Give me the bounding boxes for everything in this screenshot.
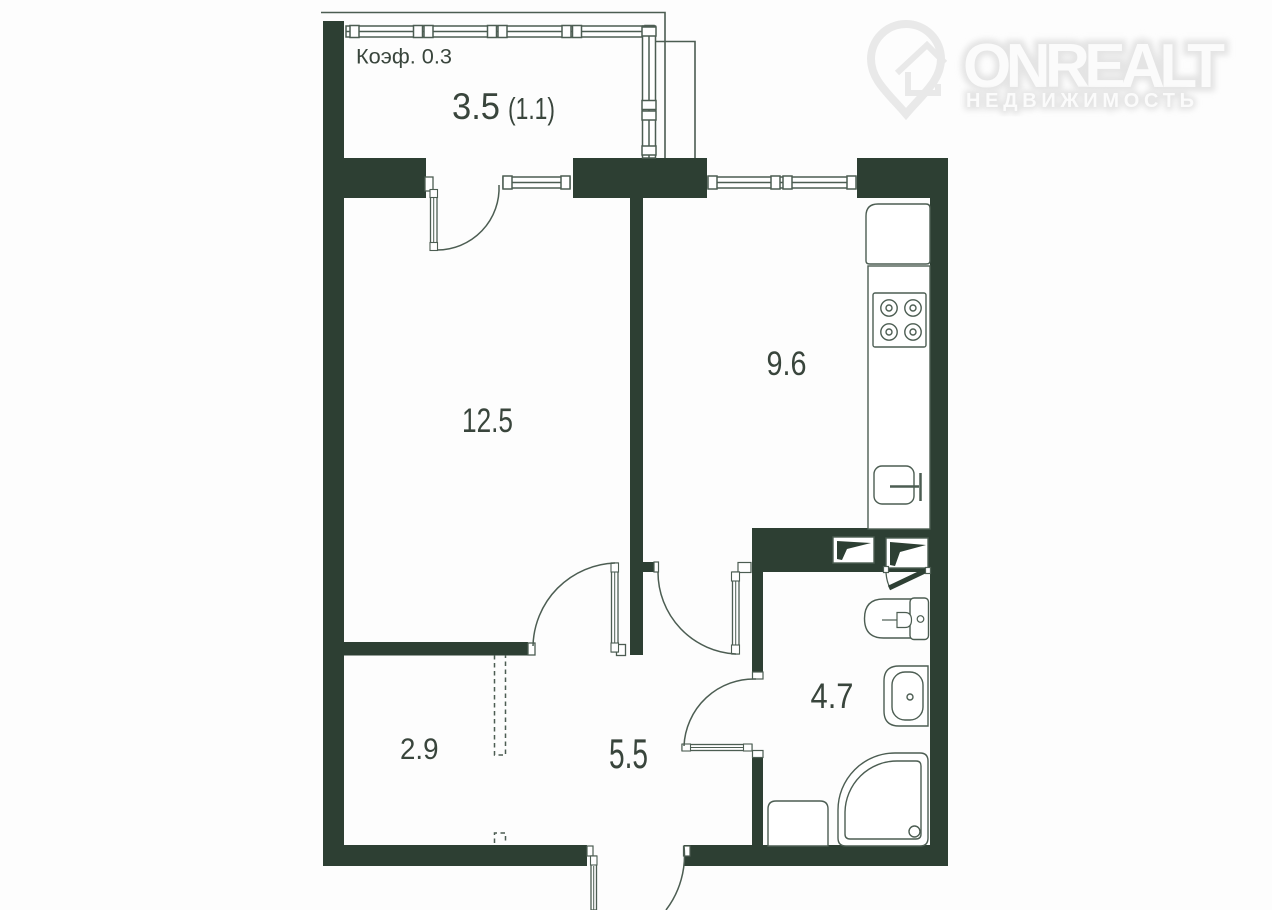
svg-text:9.6: 9.6 xyxy=(767,345,807,383)
svg-text:Коэф. 0.3: Коэф. 0.3 xyxy=(356,46,452,69)
svg-text:2.9: 2.9 xyxy=(400,733,439,766)
svg-text:(1.1): (1.1) xyxy=(508,91,555,126)
svg-text:4.7: 4.7 xyxy=(811,677,854,716)
svg-text:12.5: 12.5 xyxy=(462,402,513,440)
svg-text:5.5: 5.5 xyxy=(609,730,648,777)
svg-text:3.5: 3.5 xyxy=(452,86,500,127)
